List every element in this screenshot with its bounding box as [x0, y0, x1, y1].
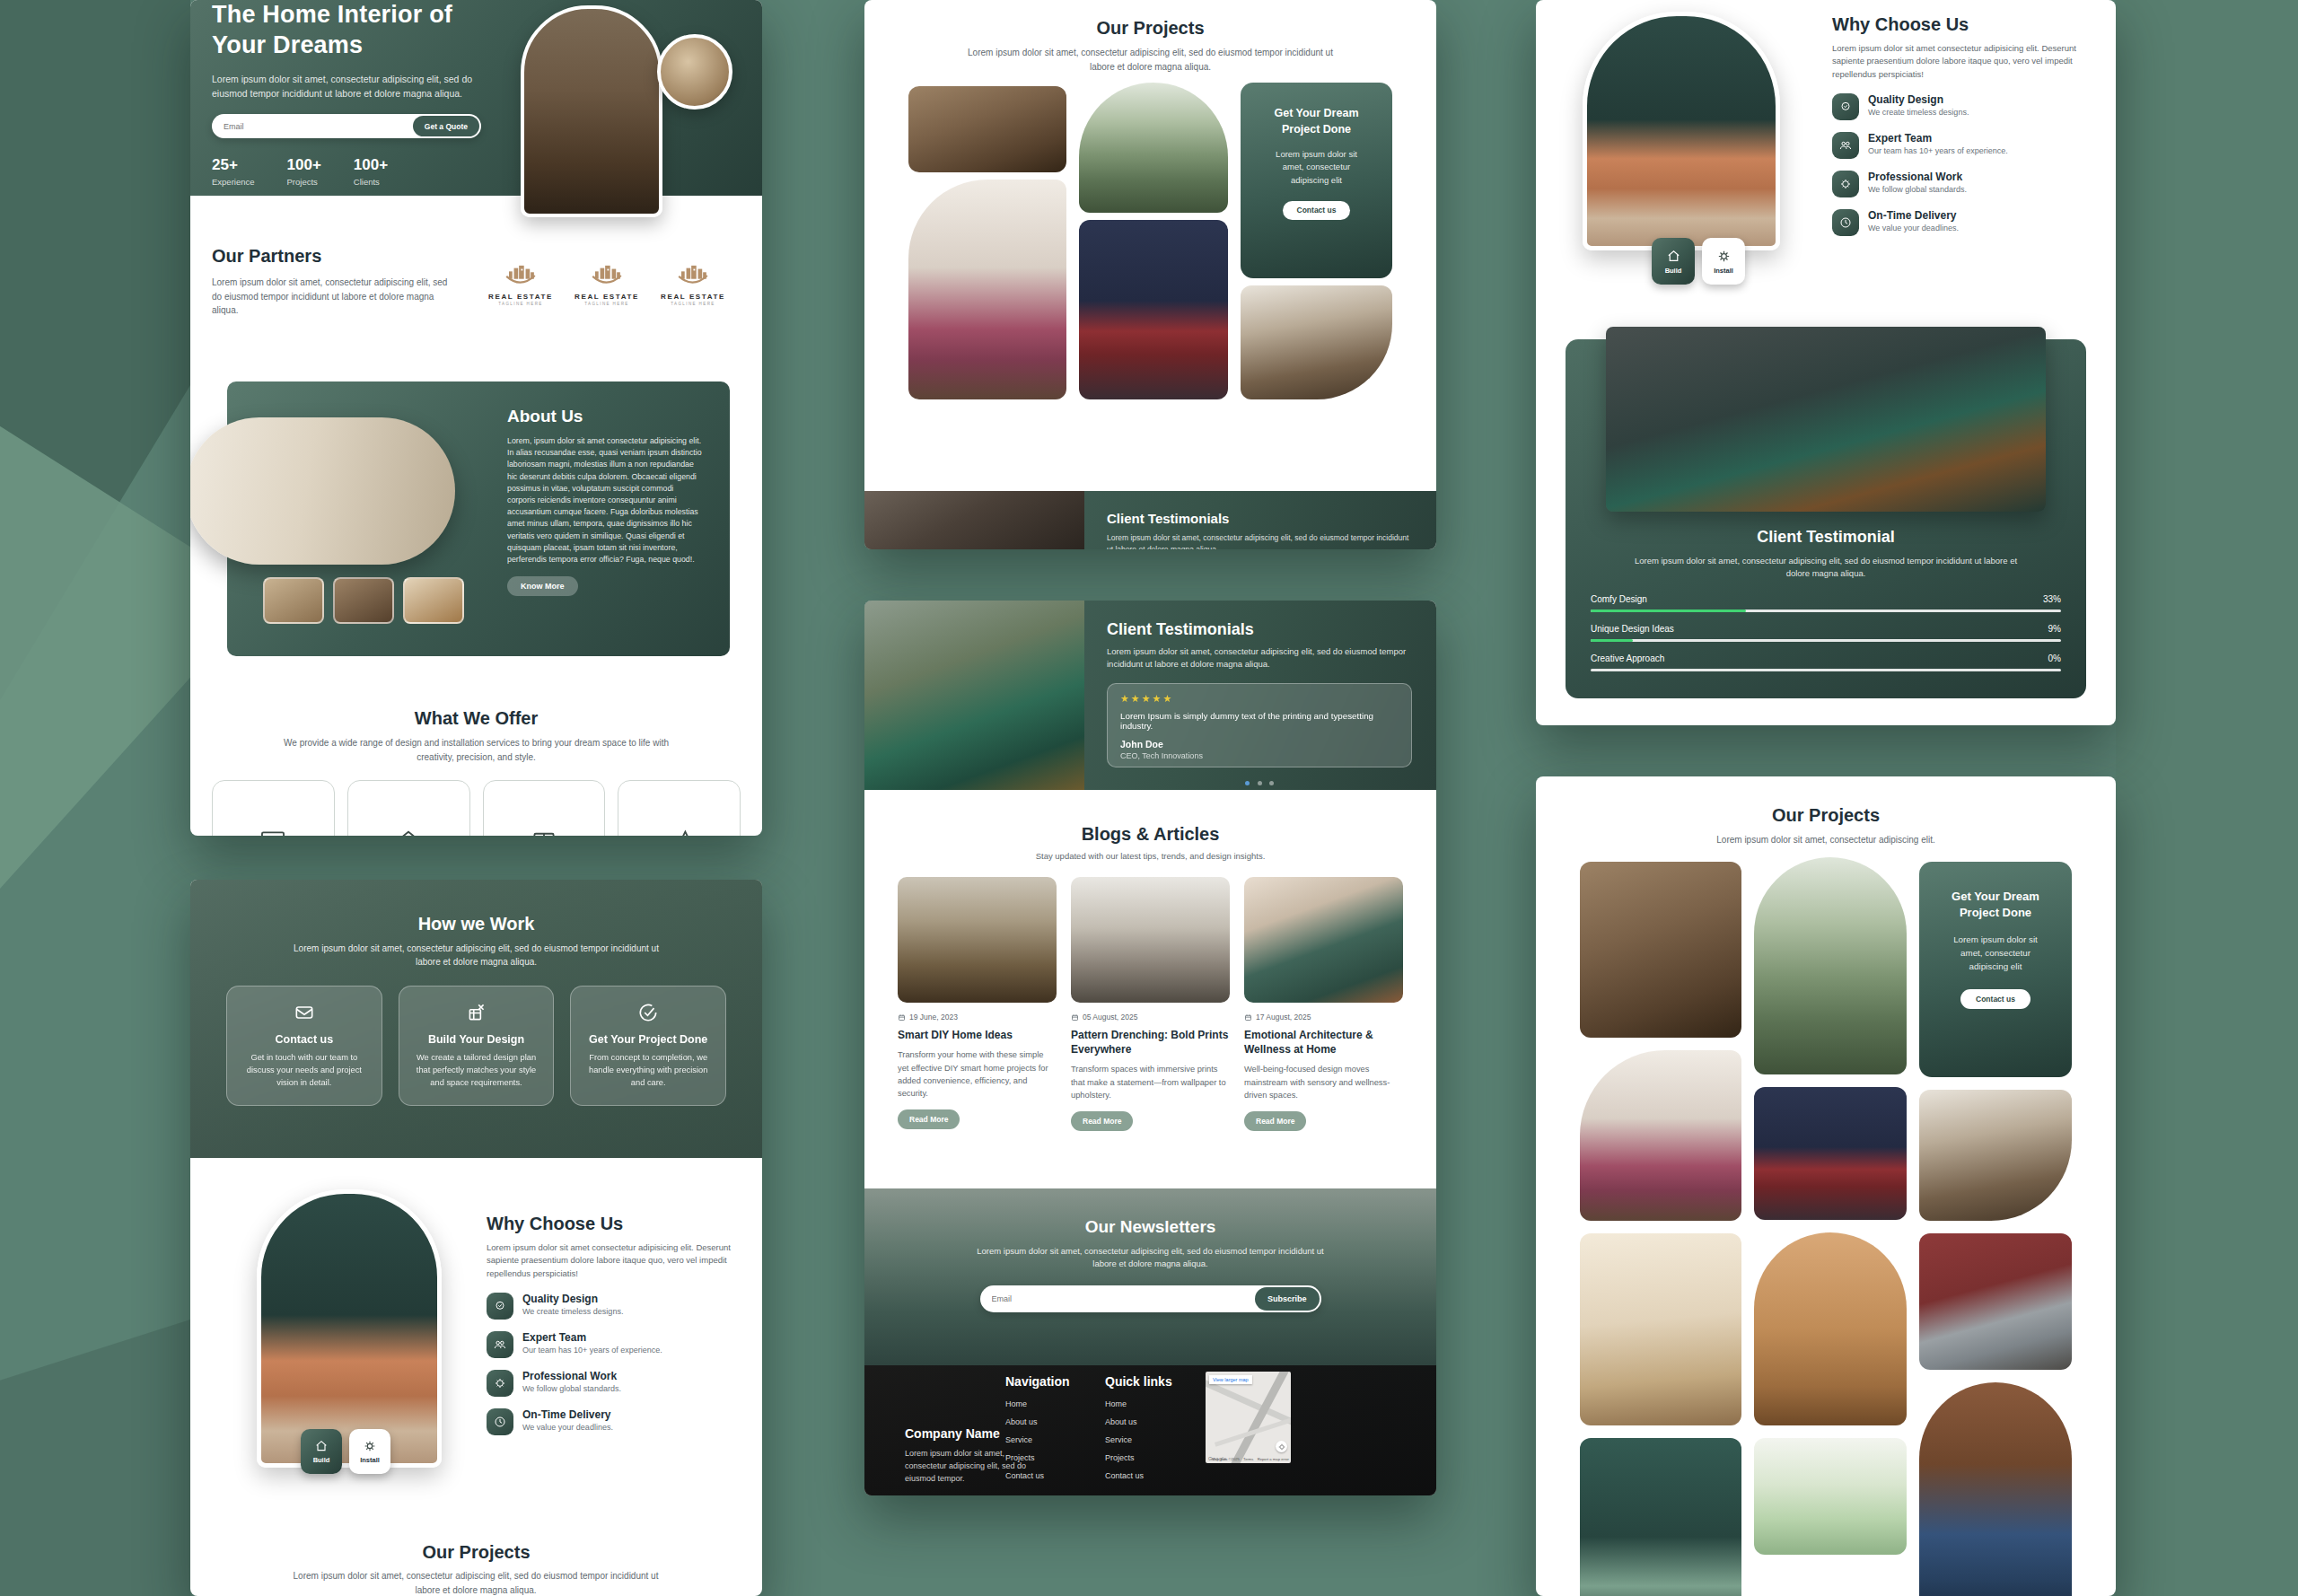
bar-label: Unique Design Ideas: [1591, 624, 1674, 634]
calendar-icon: [1071, 1013, 1079, 1022]
partners-section: Our Partners Lorem ipsum dolor sit amet,…: [190, 196, 762, 381]
why-choose-section: Why Choose Us Lorem ipsum dolor sit amet…: [1832, 14, 2089, 248]
team-icon: [493, 1337, 507, 1352]
house-tools-icon: [393, 827, 424, 837]
feature-expert-team: Expert Team Our team has 10+ years of ex…: [487, 1331, 740, 1358]
build-label: Build: [313, 1456, 330, 1464]
testimonial-role: CEO, Tech Innovations: [1120, 751, 1399, 760]
rating-bar-creative-approach: Creative Approach 0%: [1591, 653, 2061, 671]
page-why-choose: Build Install Why Choose Us Lorem ipsum …: [1536, 0, 2116, 725]
install-tile[interactable]: Install: [349, 1429, 390, 1474]
offer-section: What We Offer We provide a wide range of…: [190, 669, 762, 836]
feature-professional-work: Professional Work We follow global stand…: [1832, 171, 2089, 197]
about-thumbnail[interactable]: [333, 577, 394, 624]
testimonial-room-image: [1606, 327, 2046, 512]
stat-clients: 100+ Clients: [354, 156, 388, 187]
stat-value: 100+: [287, 156, 321, 174]
page-projects-large: Our Projects Lorem ipsum dolor sit amet,…: [1536, 776, 2116, 1596]
build-tile[interactable]: Build: [301, 1429, 342, 1474]
feature-expert-team: Expert Team Our team has 10+ years of ex…: [1832, 132, 2089, 159]
projects-title: Our Projects: [864, 18, 1436, 39]
project-image-dining[interactable]: [1241, 285, 1392, 399]
carousel-dot-active[interactable]: [1245, 781, 1250, 785]
blog-image: [898, 877, 1057, 1003]
blog-title: Smart DIY Home Ideas: [898, 1028, 1057, 1042]
blog-title: Emotional Architecture & Wellness at Hom…: [1244, 1028, 1403, 1057]
build-icon: [1666, 249, 1681, 264]
feature-body: We value your deadlines.: [522, 1423, 613, 1432]
chair-lamp-icon: [664, 827, 695, 837]
footer-nav-contact[interactable]: Contact us: [1005, 1471, 1070, 1480]
read-more-button[interactable]: Read More: [1071, 1111, 1133, 1131]
feature-body: Our team has 10+ years of experience.: [522, 1346, 662, 1355]
dream-card-body: Lorem ipsum dolor sit amet, consectetur …: [1943, 934, 2048, 973]
know-more-button[interactable]: Know More: [507, 576, 578, 596]
footer-quick-projects[interactable]: Projects: [1105, 1453, 1172, 1462]
testimonials-subtitle: Lorem ipsum dolor sit amet, consectetur …: [1107, 645, 1408, 671]
bar-label: Creative Approach: [1591, 653, 1664, 663]
clock-icon: [1838, 215, 1853, 230]
bar-value: 0%: [2048, 653, 2061, 663]
rating-bar-unique-ideas: Unique Design Ideas 9%: [1591, 624, 2061, 642]
map-report-link[interactable]: Report a map error: [1258, 1457, 1289, 1461]
why-choose-arch-image: [1583, 12, 1780, 250]
calendar-icon: [1244, 1013, 1252, 1022]
blogs-title: Blogs & Articles: [864, 824, 1436, 845]
projects-subtitle: Lorem ipsum dolor sit amet, consectetur …: [958, 46, 1344, 74]
about-title: About Us: [507, 407, 703, 426]
footer-nav-home[interactable]: Home: [1005, 1399, 1070, 1408]
project-image-dining[interactable]: [1919, 1090, 2072, 1221]
feature-title: Quality Design: [1868, 93, 1969, 106]
blog-date: 19 June, 2023: [909, 1013, 958, 1022]
feature-title: On-Time Delivery: [1868, 209, 1959, 222]
bar-value: 33%: [2043, 594, 2061, 604]
partner-logo-tagline: TAGLINE HERE: [483, 302, 558, 306]
projects-subtitle: Lorem ipsum dolor sit amet, consectetur …: [287, 1569, 664, 1596]
page-projects-top: Our Projects Lorem ipsum dolor sit amet,…: [864, 0, 1436, 549]
get-quote-button[interactable]: Get a Quote: [413, 116, 479, 136]
client-testimonial-title: Client Testimonial: [1566, 528, 2086, 547]
why-choose-intro: Lorem ipsum dolor sit amet consectetur a…: [1832, 42, 2089, 81]
about-thumbnail[interactable]: [403, 577, 464, 624]
blogs-section: Blogs & Articles Stay updated with our l…: [864, 790, 1436, 1131]
footer-nav-service[interactable]: Service: [1005, 1435, 1070, 1444]
feature-title: Professional Work: [1868, 171, 1967, 183]
stat-label: Clients: [354, 177, 388, 187]
how-we-work-title: How we Work: [190, 880, 762, 934]
footer-quick-about[interactable]: About us: [1105, 1417, 1172, 1426]
project-image-red-sofa[interactable]: [1079, 220, 1228, 399]
carousel-dots: [1107, 773, 1412, 789]
page-home-top: The Home Interior of Your Dreams Lorem i…: [190, 0, 762, 836]
map-locate-button[interactable]: [1276, 1441, 1287, 1452]
feature-professional-work: Professional Work We follow global stand…: [487, 1370, 740, 1397]
bar-value: 9%: [2048, 624, 2061, 634]
subscribe-button[interactable]: Subscribe: [1255, 1287, 1320, 1311]
step-card-contact[interactable]: Contact us Get in touch with our team to…: [226, 986, 382, 1106]
step-body: From concept to completion, we handle ev…: [582, 1052, 715, 1090]
check-circle-icon: [636, 1001, 660, 1024]
offer-title: What We Offer: [190, 708, 762, 729]
build-icon: [314, 1439, 329, 1453]
feature-on-time-delivery: On-Time Delivery We value your deadlines…: [487, 1408, 740, 1435]
map-data-label: Map data ©2025: [1212, 1457, 1240, 1461]
partner-logo: REAL ESTATE TAGLINE HERE: [655, 264, 731, 306]
feature-title: Expert Team: [522, 1331, 662, 1344]
testimonial-image: [864, 491, 1084, 549]
background-motif-bottom: [0, 1320, 190, 1596]
step-title: Get Your Project Done: [582, 1033, 715, 1046]
blog-title: Pattern Drenching: Bold Prints Everywher…: [1071, 1028, 1230, 1057]
testimonials-strip: Client Testimonials Lorem ipsum dolor si…: [864, 491, 1436, 549]
offer-card-installation[interactable]: [347, 780, 470, 836]
feature-body: Our team has 10+ years of experience.: [1868, 146, 2008, 155]
newsletter-title: Our Newsletters: [864, 1188, 1436, 1237]
step-body: We create a tailored design plan that pe…: [410, 1052, 543, 1090]
carousel-dot[interactable]: [1269, 781, 1274, 785]
feature-body: We follow global standards.: [522, 1384, 621, 1393]
real-estate-logo-icon: [676, 264, 710, 287]
rating-bar-comfy-design: Comfy Design 33%: [1591, 594, 2061, 612]
real-estate-logo-icon: [504, 264, 538, 287]
map-embed[interactable]: View larger map Google Map data ©2025 Te…: [1206, 1372, 1291, 1463]
why-choose-arch-image: [257, 1189, 442, 1468]
client-testimonial-panel: Client Testimonial Lorem ipsum dolor sit…: [1566, 339, 2086, 698]
newsletter-subtitle: Lorem ipsum dolor sit amet, consectetur …: [971, 1245, 1330, 1271]
footer-quick-service[interactable]: Service: [1105, 1435, 1172, 1444]
why-choose-section: Why Choose Us Lorem ipsum dolor sit amet…: [487, 1214, 740, 1447]
offer-subtitle: We provide a wide range of design and in…: [284, 736, 670, 764]
stat-label: Experience: [212, 177, 255, 187]
cabinet-icon: [529, 827, 559, 837]
why-choose-title: Why Choose Us: [1832, 14, 2089, 35]
dream-card-title: Get Your Dream Project Done: [1939, 889, 2052, 921]
step-body: Get in touch with our team to discuss yo…: [238, 1052, 371, 1090]
blueprint-icon: [465, 1001, 488, 1024]
partner-logo-name: REAL ESTATE: [483, 293, 558, 301]
blog-body: Transform your home with these simple ye…: [898, 1048, 1057, 1101]
stat-label: Projects: [287, 177, 321, 187]
contact-us-button[interactable]: Contact us: [1283, 201, 1351, 220]
blog-card[interactable]: 19 June, 2023 Smart DIY Home Ideas Trans…: [898, 877, 1057, 1131]
install-icon: [1716, 249, 1732, 264]
calendar-icon: [898, 1013, 906, 1022]
footer-quick-title: Quick links: [1105, 1374, 1172, 1389]
bar-fill: [1591, 639, 1633, 642]
newsletter-section: Our Newsletters Lorem ipsum dolor sit am…: [864, 1188, 1436, 1365]
partner-logo-name: REAL ESTATE: [655, 293, 731, 301]
project-image-red-sofa[interactable]: [1754, 1087, 1907, 1220]
blog-date: 17 August, 2025: [1256, 1013, 1311, 1022]
feature-quality-design: Quality Design We create timeless design…: [1832, 93, 2089, 120]
testimonials-title: Client Testimonials: [1107, 511, 1229, 526]
projects-subtitle: Lorem ipsum dolor sit amet, consectetur …: [1536, 833, 2116, 847]
presentation-canvas: The Home Interior of Your Dreams Lorem i…: [0, 0, 2298, 1596]
dream-card-body: Lorem ipsum dolor sit amet, consectetur …: [1264, 148, 1369, 187]
partners-description: Lorem ipsum dolor sit amet, consectetur …: [212, 276, 454, 318]
map-terms-link[interactable]: Terms: [1243, 1457, 1253, 1461]
feature-title: Quality Design: [522, 1293, 623, 1305]
hero-subtitle: Lorem ipsum dolor sit amet, consectetur …: [212, 72, 481, 101]
testimonials-section: Client Testimonials Lorem ipsum dolor si…: [864, 601, 1436, 790]
project-image-blue-sofa[interactable]: [1919, 1382, 2072, 1596]
real-estate-logo-icon: [590, 264, 624, 287]
partner-logo: REAL ESTATE TAGLINE HERE: [569, 264, 645, 306]
contact-icon: [293, 1001, 316, 1024]
blogs-subtitle: Stay updated with our latest tips, trend…: [864, 851, 1436, 861]
testimonial-card: ★★★★★ Lorem Ipsum is simply dummy text o…: [1107, 683, 1412, 767]
project-image-living[interactable]: [1580, 862, 1741, 1038]
project-image-stairs[interactable]: [1754, 857, 1907, 1074]
read-more-button[interactable]: Read More: [898, 1109, 960, 1129]
project-image-red-wall[interactable]: [1919, 1233, 2072, 1370]
page-content-middle: Client Testimonials Lorem ipsum dolor si…: [864, 601, 1436, 1495]
project-image-pink-chairs[interactable]: [908, 180, 1066, 399]
stat-experience: 25+ Experience: [212, 156, 255, 187]
read-more-button[interactable]: Read More: [1244, 1111, 1306, 1131]
feature-quality-design: Quality Design We create timeless design…: [487, 1293, 740, 1320]
blog-body: Transform spaces with immersive prints t…: [1071, 1063, 1230, 1101]
footer-quick-contact[interactable]: Contact us: [1105, 1471, 1172, 1480]
why-choose-title: Why Choose Us: [487, 1214, 740, 1234]
bar-fill: [1591, 609, 1746, 612]
projects-title: Our Projects: [190, 1542, 762, 1563]
offer-card-furniture[interactable]: [483, 780, 606, 836]
footer-quick-home[interactable]: Home: [1105, 1399, 1172, 1408]
partner-logo-tagline: TAGLINE HERE: [655, 302, 731, 306]
install-tile[interactable]: Install: [1702, 238, 1745, 285]
carousel-dot[interactable]: [1258, 781, 1262, 785]
project-image-mint-kitchen[interactable]: [1754, 1438, 1907, 1555]
footer-nav-projects[interactable]: Projects: [1005, 1453, 1070, 1462]
blog-image: [1244, 877, 1403, 1003]
feature-body: We create timeless designs.: [522, 1307, 623, 1316]
map-attribution: Map data ©2025 Terms Report a map error: [1212, 1457, 1289, 1461]
dream-project-card: Get Your Dream Project Done Lorem ipsum …: [1919, 862, 2072, 1077]
step-title: Contact us: [238, 1033, 371, 1046]
stat-value: 25+: [212, 156, 255, 174]
background-right: [2116, 0, 2298, 1596]
medal-icon: [493, 1299, 507, 1313]
testimonial-name: John Doe: [1120, 739, 1399, 750]
partner-logo-name: REAL ESTATE: [569, 293, 645, 301]
build-label: Build: [1665, 267, 1682, 275]
team-icon: [1838, 138, 1853, 153]
feature-title: On-Time Delivery: [522, 1408, 613, 1421]
blog-card[interactable]: 05 August, 2025 Pattern Drenching: Bold …: [1071, 877, 1230, 1131]
contact-us-button[interactable]: Contact us: [1960, 989, 2030, 1009]
step-card-design[interactable]: Build Your Design We create a tailored d…: [399, 986, 555, 1106]
feature-title: Professional Work: [522, 1370, 621, 1382]
drafting-board-icon: [258, 827, 288, 837]
testimonial-quote: Lorem Ipsum is simply dummy text of the …: [1120, 711, 1399, 731]
newsletter-form: Subscribe: [980, 1285, 1321, 1312]
crosshair-icon: [1278, 1443, 1285, 1451]
projects-title: Our Projects: [1536, 805, 2116, 826]
hero-circle-image: [657, 34, 732, 110]
clock-icon: [493, 1415, 507, 1429]
testimonial-image: [864, 601, 1084, 790]
install-label: Install: [360, 1456, 380, 1464]
about-section: About Us Lorem, ipsum dolor sit amet con…: [227, 381, 730, 656]
stat-projects: 100+ Projects: [287, 156, 321, 187]
blog-image: [1071, 877, 1230, 1003]
footer-nav-about[interactable]: About us: [1005, 1417, 1070, 1426]
hero-title: The Home Interior of Your Dreams: [212, 0, 490, 61]
offer-card-design[interactable]: [212, 780, 335, 836]
step-title: Build Your Design: [410, 1033, 543, 1046]
page-home-bottom: How we Work Lorem ipsum dolor sit amet, …: [190, 880, 762, 1596]
testimonials-subtitle: Lorem ipsum dolor sit amet, consectetur …: [1107, 532, 1412, 549]
how-we-work-subtitle: Lorem ipsum dolor sit amet, consectetur …: [284, 942, 670, 969]
about-pill-image: [190, 417, 455, 565]
badge-icon: [1838, 177, 1853, 191]
testimonials-title: Client Testimonials: [1107, 620, 1254, 639]
blog-card[interactable]: 17 August, 2025 Emotional Architecture &…: [1244, 877, 1403, 1131]
step-card-done[interactable]: Get Your Project Done From concept to co…: [570, 986, 726, 1106]
view-larger-map-link[interactable]: View larger map: [1209, 1375, 1252, 1384]
feature-body: We create timeless designs.: [1868, 108, 1969, 117]
feature-on-time-delivery: On-Time Delivery We value your deadlines…: [1832, 209, 2089, 236]
project-image-hallway[interactable]: [1580, 1233, 1741, 1425]
how-we-work-section: How we Work Lorem ipsum dolor sit amet, …: [190, 880, 762, 1158]
blog-date: 05 August, 2025: [1083, 1013, 1137, 1022]
star-rating: ★★★★★: [1120, 693, 1399, 705]
project-image-arch-door[interactable]: [1754, 1232, 1907, 1425]
client-testimonial-subtitle: Lorem ipsum dolor sit amet, consectetur …: [1628, 555, 2023, 581]
offer-card-decor[interactable]: [618, 780, 741, 836]
project-image-teal-room[interactable]: [1580, 1438, 1741, 1596]
partner-logo: REAL ESTATE TAGLINE HERE: [483, 264, 558, 306]
bar-label: Comfy Design: [1591, 594, 1647, 604]
install-icon: [363, 1439, 377, 1453]
feature-body: We value your deadlines.: [1868, 224, 1959, 232]
feature-title: Expert Team: [1868, 132, 2008, 145]
dream-card-title: Get Your Dream Project Done: [1262, 106, 1371, 137]
about-thumbnail[interactable]: [263, 577, 324, 624]
why-choose-intro: Lorem ipsum dolor sit amet consectetur a…: [487, 1241, 740, 1280]
footer-nav-title: Navigation: [1005, 1374, 1070, 1389]
hero-arch-image: [521, 5, 662, 217]
partner-logo-tagline: TAGLINE HERE: [569, 302, 645, 306]
feature-body: We follow global standards.: [1868, 185, 1967, 194]
build-tile[interactable]: Build: [1652, 238, 1695, 285]
footer-section: Company Name Lorem ipsum dolor sit amet,…: [864, 1365, 1436, 1495]
project-image-living[interactable]: [908, 86, 1066, 172]
quote-email-form: Get a Quote: [212, 114, 481, 138]
install-label: Install: [1714, 267, 1733, 275]
medal-icon: [1838, 100, 1853, 114]
project-image-pink-chairs[interactable]: [1580, 1050, 1741, 1221]
about-body: Lorem, ipsum dolor sit amet consectetur …: [507, 435, 703, 566]
project-image-stairs[interactable]: [1079, 83, 1228, 213]
stat-value: 100+: [354, 156, 388, 174]
dream-project-card: Get Your Dream Project Done Lorem ipsum …: [1241, 83, 1392, 278]
blog-body: Well-being-focused design moves mainstre…: [1244, 1063, 1403, 1101]
badge-icon: [493, 1376, 507, 1390]
